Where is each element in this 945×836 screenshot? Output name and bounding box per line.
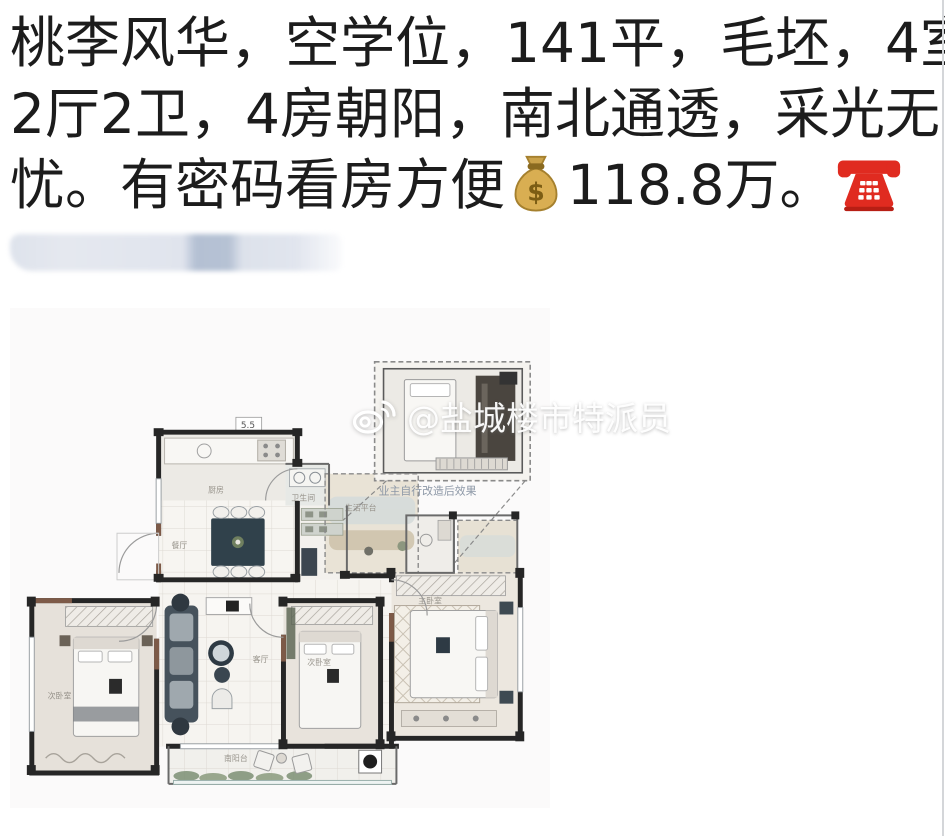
post-text-line3-prefix: 忧。有密码看房方便 <box>10 153 505 217</box>
redacted-blur-tag[interactable] <box>10 234 342 271</box>
post-text: 桃李风华，空学位，141平，毛坯，4室 2厅2卫，4房朝阳，南北通透，采光无 忧… <box>10 8 940 230</box>
inset-caption: 业主自行改造后效果 <box>379 484 477 498</box>
floorplan-photo[interactable]: 业主自行改造后效果 5.5 厨房 <box>10 308 550 808</box>
balcony-label: 南阳台 <box>224 753 248 763</box>
svg-text:$: $ <box>527 178 545 207</box>
floorplan-drawing: 业主自行改造后效果 5.5 厨房 <box>10 308 550 808</box>
page-right-border <box>942 0 944 836</box>
balcony-chair <box>292 753 312 773</box>
post-text-line1: 桃李风华，空学位，141平，毛坯，4室 <box>10 8 940 79</box>
post-text-line2: 2厅2卫，4房朝阳，南北通透，采光无 <box>10 79 940 150</box>
kitchen-label: 厨房 <box>208 485 224 495</box>
tall-cabinet <box>301 548 317 576</box>
red-telephone-emoji <box>837 156 901 230</box>
weibo-post-page: 桃李风华，空学位，141平，毛坯，4室 2厅2卫，4房朝阳，南北通透，采光无 忧… <box>0 0 945 836</box>
armchair <box>212 689 232 709</box>
bedroom-left-label: 次卧室 <box>48 691 72 701</box>
post-text-line3: 忧。有密码看房方便 $ 118.8万。 <box>10 150 940 230</box>
dining-label2: 餐厅 <box>172 541 188 550</box>
money-bag-emoji: $ <box>508 153 564 230</box>
platform-label: 生活平台 <box>345 502 377 512</box>
bedroom-mid-label: 次卧室 <box>307 657 331 667</box>
post-price-text: 118.8万。 <box>567 153 834 217</box>
living-label: 客厅 <box>253 654 269 664</box>
